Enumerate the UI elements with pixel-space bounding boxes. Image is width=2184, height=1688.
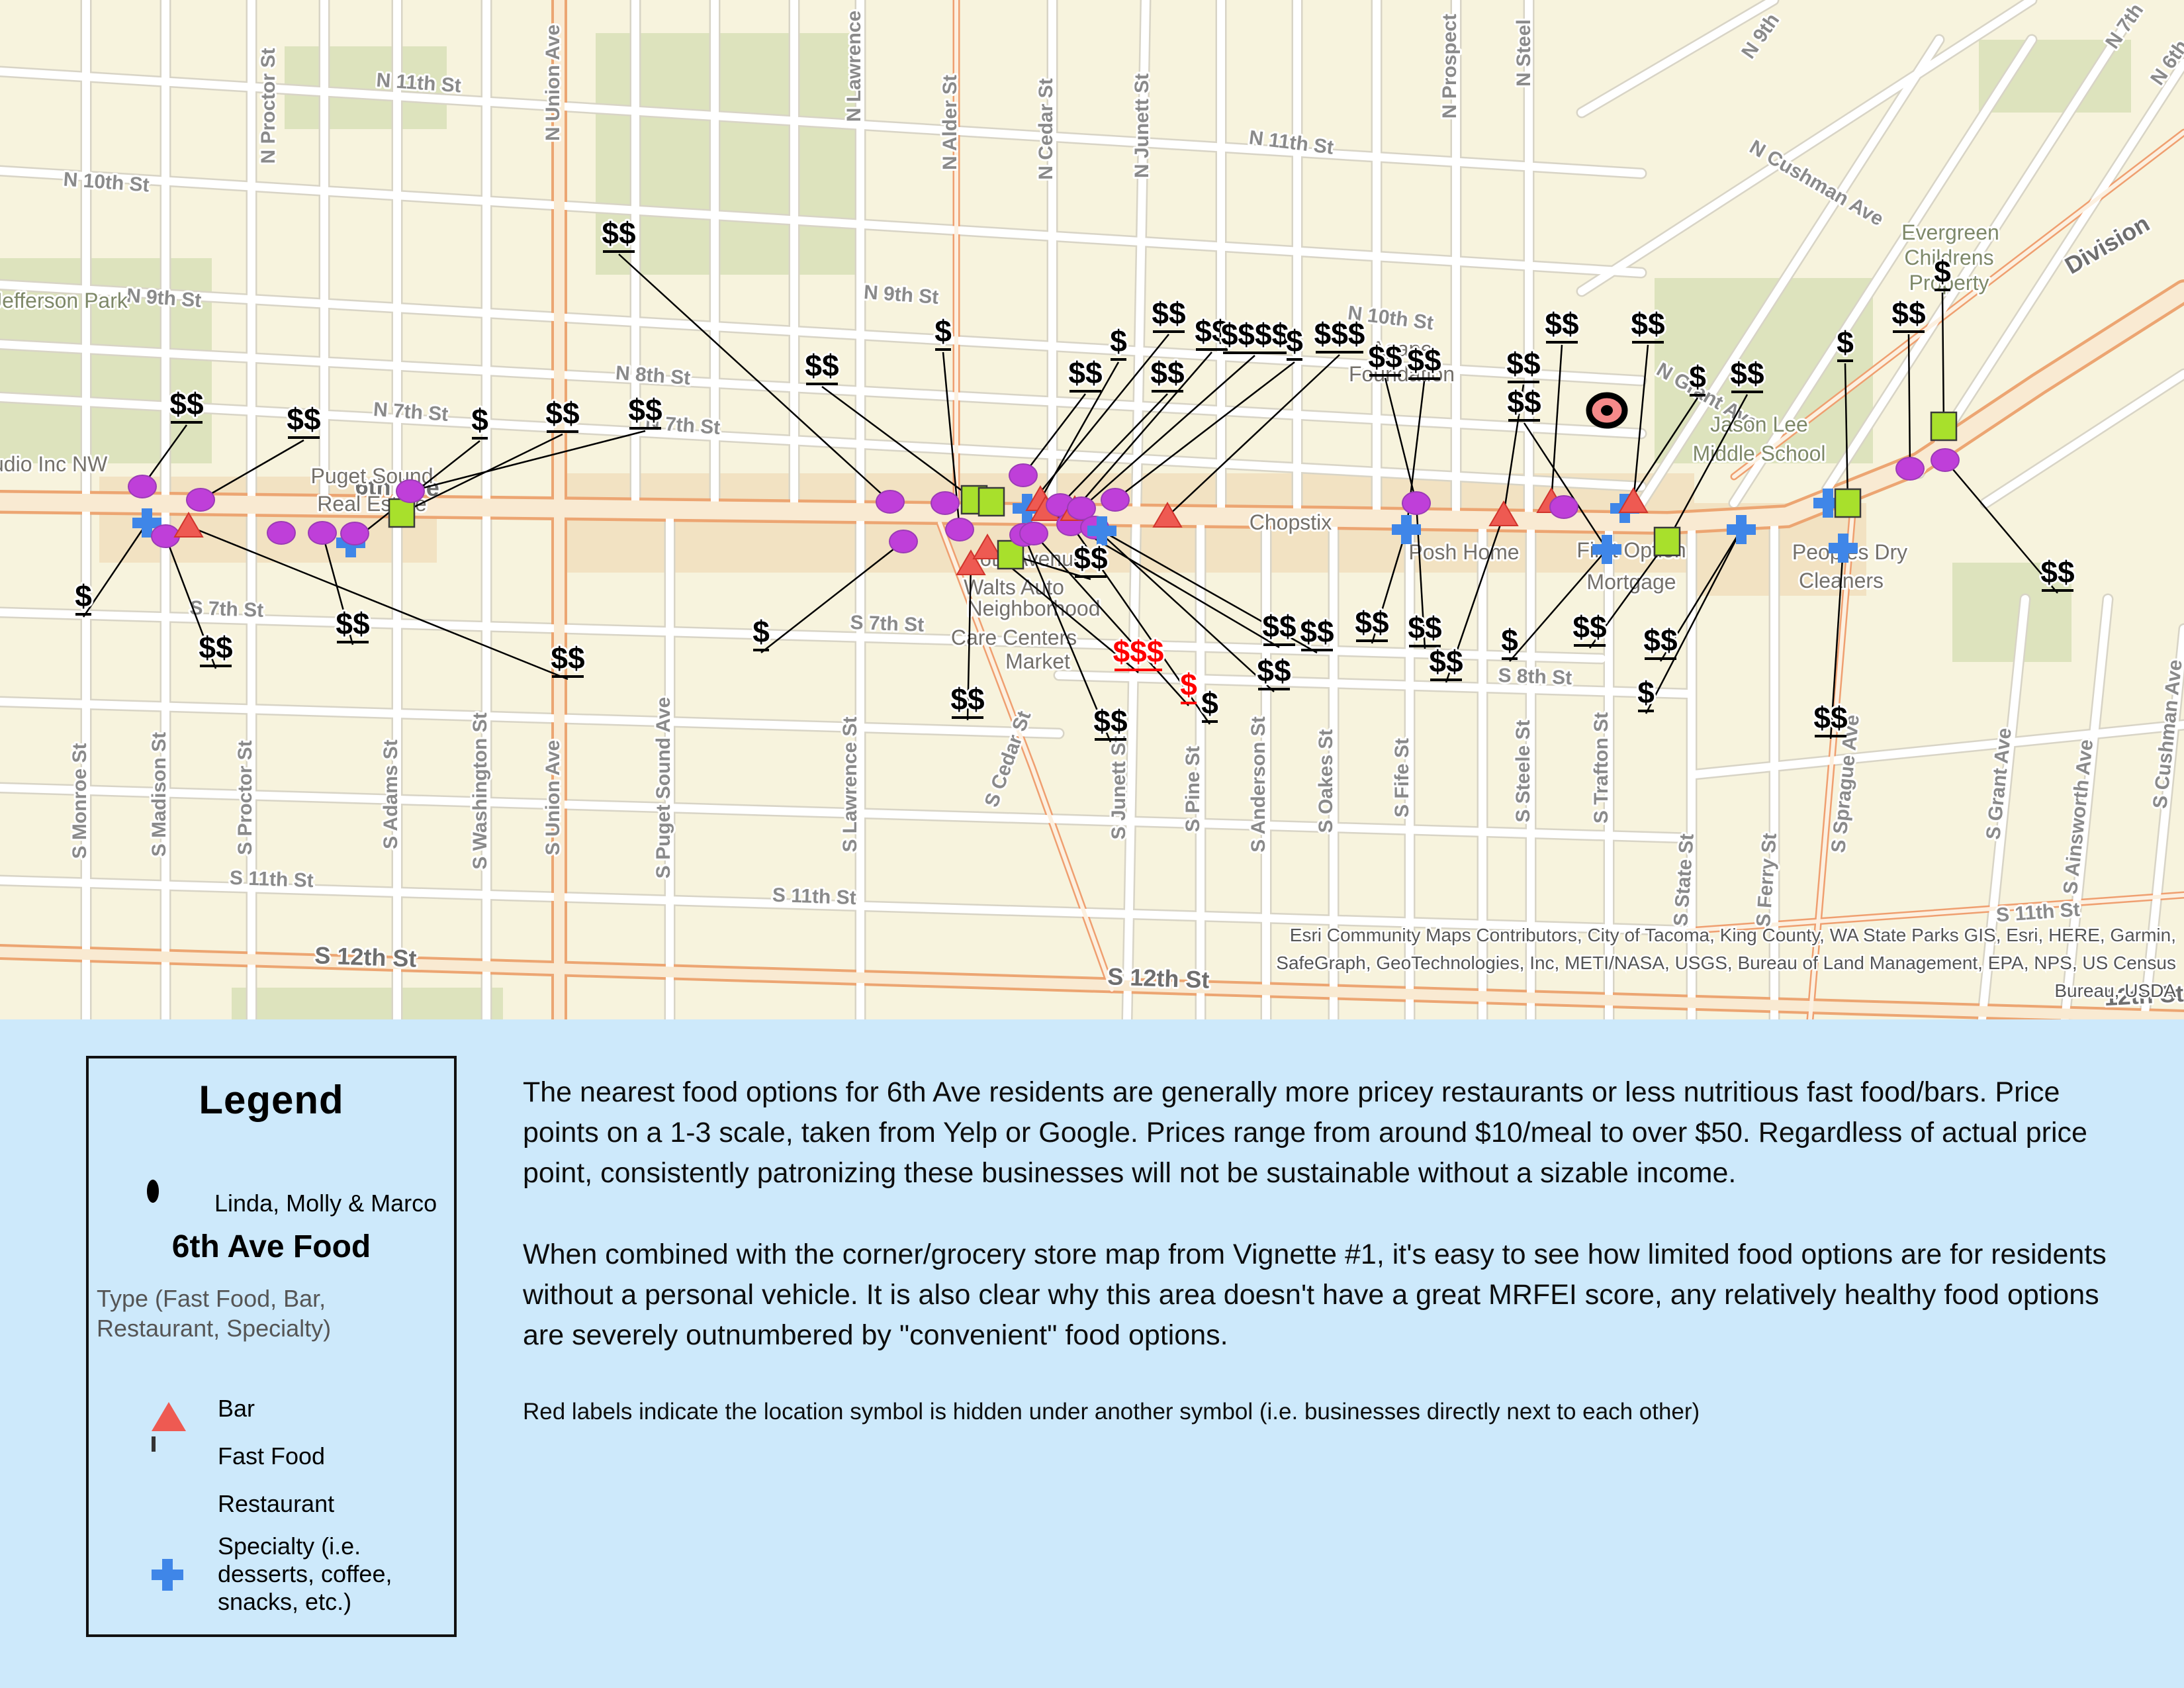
legend-specialty-label: Specialty (i.e. desserts, coffee, snacks… bbox=[218, 1532, 392, 1616]
price-label: $$ bbox=[602, 216, 635, 250]
paragraph-2: When combined with the corner/grocery st… bbox=[523, 1235, 2118, 1356]
price-label: $$ bbox=[2040, 555, 2074, 589]
marker-restaurant[interactable] bbox=[396, 480, 424, 502]
street-label: N Union Ave bbox=[542, 24, 564, 141]
marker-restaurant[interactable] bbox=[876, 491, 904, 513]
attribution-line: SafeGraph, GeoTechnologies, Inc, METI/NA… bbox=[1276, 953, 2176, 973]
bar-icon bbox=[152, 1391, 186, 1403]
legend: Legend Linda, Molly & Marco 6th Ave Food… bbox=[86, 1056, 457, 1637]
marker-restaurant[interactable] bbox=[1402, 492, 1430, 514]
price-label: $ bbox=[752, 614, 770, 649]
attribution-line: Esri Community Maps Contributors, City o… bbox=[1290, 925, 2176, 945]
price-label: $$ bbox=[1643, 623, 1677, 657]
price-label: $$ bbox=[1507, 385, 1541, 419]
street-label: S Lawrence St bbox=[839, 716, 861, 852]
marker-fastfood[interactable] bbox=[979, 488, 1004, 516]
price-label: $$ bbox=[1355, 605, 1388, 639]
legend-home-label: Linda, Molly & Marco bbox=[214, 1190, 437, 1217]
bottom-panel: Legend Linda, Molly & Marco 6th Ave Food… bbox=[0, 1019, 2184, 1688]
price-label: $$ bbox=[1300, 614, 1334, 649]
price-label: $ bbox=[1110, 324, 1127, 358]
price-label: $$ bbox=[1407, 343, 1441, 377]
price-label: $$ bbox=[1073, 541, 1107, 575]
park-area bbox=[232, 988, 503, 1019]
street-label: S Steele St bbox=[1512, 720, 1534, 822]
street-label: S 8th St bbox=[1498, 665, 1572, 689]
park-label: Evergreen bbox=[1901, 220, 1999, 244]
street-label: S Union Ave bbox=[542, 740, 564, 855]
marker-fastfood[interactable] bbox=[389, 499, 414, 527]
price-label: $$$ bbox=[1314, 316, 1365, 351]
price-label: $ bbox=[1180, 667, 1197, 702]
marker-restaurant[interactable] bbox=[889, 530, 917, 553]
poi-label: Posh Home bbox=[1408, 540, 1519, 564]
price-label: $$ bbox=[1093, 704, 1127, 738]
price-label: $$$ bbox=[1113, 634, 1164, 669]
park-label: Jason Lee bbox=[1710, 412, 1808, 436]
price-label: $$ bbox=[1429, 644, 1463, 679]
street-label: S Puget Sound Ave bbox=[653, 697, 674, 878]
fastfood-icon bbox=[152, 1438, 156, 1450]
marker-restaurant[interactable] bbox=[946, 518, 974, 541]
price-label: $$ bbox=[169, 387, 203, 421]
price-label: $$ bbox=[1891, 296, 1925, 330]
price-label: $$ bbox=[1262, 609, 1296, 643]
legend-fastfood-label: Fast Food bbox=[218, 1442, 325, 1470]
price-label: $ bbox=[1286, 324, 1303, 358]
marker-restaurant[interactable] bbox=[267, 522, 295, 544]
park-label: Jefferson Park bbox=[0, 289, 128, 312]
price-label: $$ bbox=[551, 641, 584, 675]
poi-label: Market bbox=[1005, 649, 1070, 673]
street-label: S Monroe St bbox=[69, 743, 91, 859]
legend-title: Legend bbox=[89, 1077, 454, 1123]
park-label: Middle School bbox=[1693, 442, 1826, 465]
price-label: $ bbox=[75, 579, 92, 613]
price-label: $$ bbox=[199, 630, 232, 665]
description-text: The nearest food options for 6th Ave res… bbox=[523, 1072, 2118, 1427]
price-label: $ bbox=[1201, 686, 1218, 720]
price-label: $$ bbox=[1506, 346, 1540, 381]
price-label: $ bbox=[1689, 359, 1706, 394]
street-label: S Adams St bbox=[380, 739, 402, 849]
street-label: S 12th St bbox=[314, 941, 417, 972]
price-label: $ bbox=[934, 314, 952, 348]
marker-restaurant[interactable] bbox=[1931, 449, 1959, 471]
legend-subtitle: 6th Ave Food bbox=[89, 1229, 454, 1265]
street-label: S Junett St bbox=[1108, 736, 1130, 840]
price-label: $ bbox=[471, 402, 488, 437]
street-label: S 7th St bbox=[189, 597, 264, 622]
home-icon bbox=[147, 1186, 159, 1197]
street-label: N Steel bbox=[1513, 19, 1535, 87]
street-label: S Washington St bbox=[469, 712, 491, 869]
marker-restaurant[interactable] bbox=[1896, 457, 1924, 480]
price-label: $$ bbox=[805, 348, 839, 383]
price-label: $$ bbox=[545, 396, 579, 430]
street-label: S 7th St bbox=[850, 612, 925, 636]
attribution-line: Bureau, USDA bbox=[2054, 980, 2176, 1001]
marker-restaurant[interactable] bbox=[128, 475, 156, 498]
street-label: N Prospect bbox=[1439, 14, 1461, 118]
price-label: $$ bbox=[1545, 306, 1578, 341]
street-label: S Anderson St bbox=[1248, 716, 1269, 853]
map-canvas[interactable]: N 11th StN 10th StN 9th StN 9th StN 8th … bbox=[0, 0, 2184, 1019]
street-label: N Proctor St bbox=[257, 48, 279, 164]
street-label: N Cedar St bbox=[1035, 78, 1057, 179]
legend-type-line2: Restaurant, Specialty) bbox=[97, 1313, 454, 1343]
price-label: $$ bbox=[1368, 340, 1402, 374]
price-label: $$ bbox=[628, 393, 662, 427]
legend-bar-label: Bar bbox=[218, 1395, 255, 1423]
marker-fastfood[interactable] bbox=[1835, 489, 1860, 517]
red-label-note: Red labels indicate the location symbol … bbox=[523, 1397, 2118, 1427]
street-label: S Fife St bbox=[1391, 738, 1413, 818]
legend-type-line1: Type (Fast Food, Bar, bbox=[97, 1284, 454, 1313]
price-label: $ bbox=[1637, 675, 1655, 710]
price-label: $$ bbox=[1068, 355, 1102, 390]
marker-restaurant[interactable] bbox=[931, 492, 959, 514]
marker-restaurant[interactable] bbox=[1020, 522, 1048, 545]
poi-label: Studio Inc NW bbox=[0, 452, 108, 476]
price-label: $ bbox=[1501, 623, 1518, 657]
poi-label: Neighborhood bbox=[967, 596, 1100, 620]
marker-fastfood[interactable] bbox=[1931, 412, 1956, 440]
price-label: $$ bbox=[950, 682, 984, 716]
marker-restaurant[interactable] bbox=[1009, 464, 1037, 487]
price-label: $$ bbox=[1572, 610, 1606, 644]
legend-restaurant-label: Restaurant bbox=[218, 1490, 334, 1518]
street-label: S Trafton St bbox=[1590, 712, 1612, 823]
marker-restaurant[interactable] bbox=[187, 489, 214, 511]
price-label: $$ bbox=[1150, 355, 1184, 390]
paragraph-1: The nearest food options for 6th Ave res… bbox=[523, 1072, 2118, 1194]
price-label: $$ bbox=[1631, 306, 1664, 341]
page: N 11th StN 10th StN 9th StN 9th StN 8th … bbox=[0, 0, 2184, 1688]
street-label: S 11th St bbox=[229, 867, 314, 892]
street-label: N Junett St bbox=[1131, 73, 1153, 178]
street-label: S Madison St bbox=[148, 732, 170, 857]
price-label: $$ bbox=[1257, 653, 1291, 688]
street-label: S 12th St bbox=[1107, 962, 1210, 993]
poi-label: Chopstix bbox=[1250, 510, 1332, 534]
street-label: S Oakes St bbox=[1315, 729, 1337, 833]
street-label: S Pine St bbox=[1182, 746, 1204, 832]
home-marker-dot bbox=[1601, 405, 1613, 416]
street-label: S Proctor St bbox=[234, 740, 256, 855]
marker-fastfood[interactable] bbox=[1655, 528, 1680, 555]
street-label: S 11th St bbox=[772, 884, 856, 909]
price-label: $ bbox=[1837, 325, 1854, 359]
street-label: N Lawrence bbox=[843, 11, 865, 122]
marker-restaurant[interactable] bbox=[1550, 496, 1578, 518]
marker-restaurant[interactable] bbox=[341, 522, 369, 545]
price-label: $$ bbox=[1408, 610, 1441, 645]
price-label: $$$$ bbox=[1221, 317, 1289, 352]
price-label: $$ bbox=[1813, 700, 1847, 735]
price-label: $$ bbox=[1730, 356, 1764, 391]
price-label: $$ bbox=[336, 606, 369, 641]
price-label: $$ bbox=[1152, 296, 1185, 330]
price-label: $ bbox=[1934, 254, 1951, 289]
marker-restaurant[interactable] bbox=[1101, 489, 1129, 511]
street-label: N Alder St bbox=[939, 75, 961, 170]
price-label: $$ bbox=[287, 402, 320, 436]
marker-restaurant[interactable] bbox=[308, 522, 336, 544]
